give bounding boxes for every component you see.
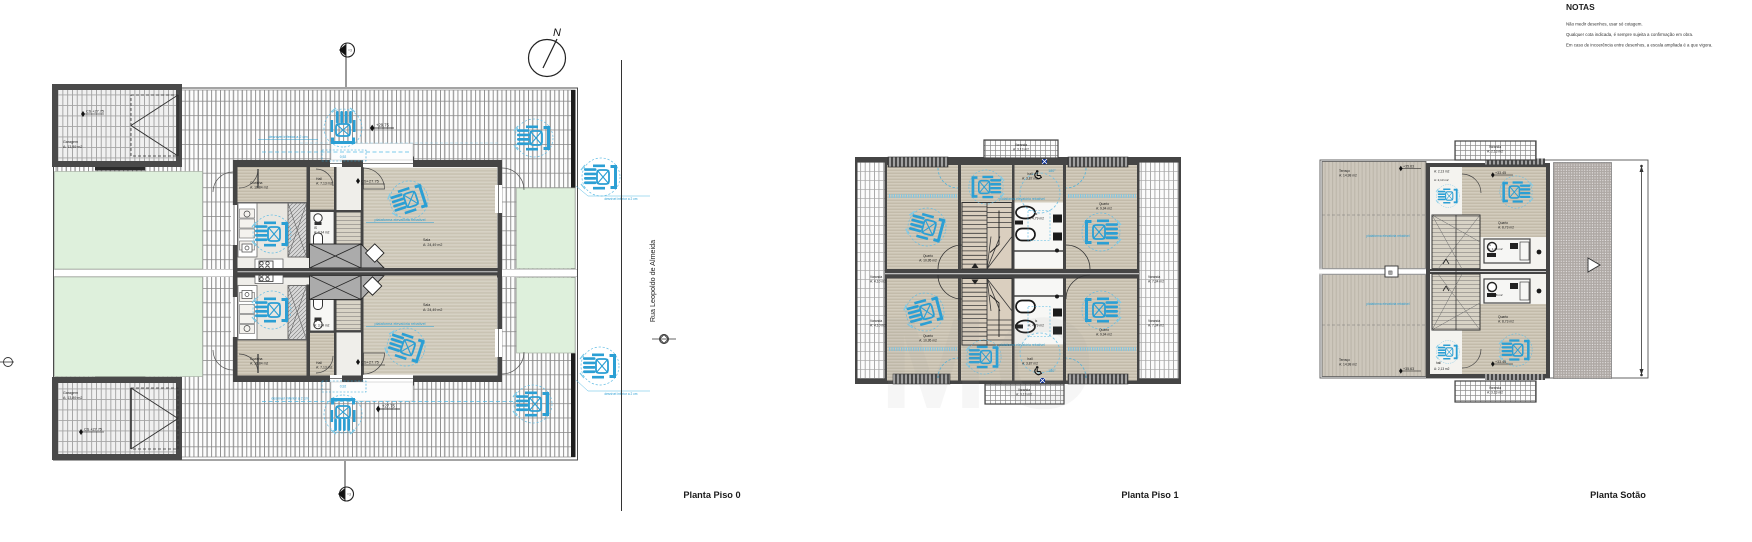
svg-text:plataforma elevatória rebatíve: plataforma elevatória rebatível (999, 197, 1045, 201)
svg-text:VarandaA: 3,13 m2: VarandaA: 3,13 m2 (1487, 386, 1503, 394)
svg-text:CS +27.75: CS +27.75 (86, 110, 104, 114)
svg-text:=3: =3 (347, 493, 351, 497)
svg-text:▧: ▧ (1388, 270, 1393, 276)
svg-text:VarandaA: 2,13 m2: VarandaA: 2,13 m2 (1487, 145, 1503, 153)
svg-text:plataforma elevatória rebatíve: plataforma elevatória rebatível (1367, 234, 1410, 238)
svg-text:A: 2,13 m2: A: 2,13 m2 (1434, 170, 1450, 174)
svg-text:CS +27.75: CS +27.75 (84, 428, 102, 432)
svg-text:Rua Leopoldo de Almeida: Rua Leopoldo de Almeida (648, 240, 657, 322)
svg-text:VarandaA: 3,13 m2: VarandaA: 3,13 m2 (1013, 143, 1029, 151)
svg-text:+27.75: +27.75 (382, 404, 396, 409)
svg-text:0,92: 0,92 (340, 385, 347, 389)
svg-text:0,92: 0,92 (340, 155, 347, 159)
svg-text:=3: =3 (348, 49, 352, 53)
svg-text:Planta Sotão: Planta Sotão (1590, 490, 1646, 500)
svg-text:NOTAS: NOTAS (1566, 2, 1595, 12)
svg-text:A: 2,13 m2: A: 2,13 m2 (1434, 178, 1449, 182)
svg-text:plataforma elevatória rebatíve: plataforma elevatória rebatível (1367, 302, 1410, 306)
svg-text:+33.45: +33.45 (1495, 360, 1506, 364)
svg-text:desnível inferior a 2 cm: desnível inferior a 2 cm (268, 135, 307, 139)
svg-text:hall: hall (1436, 361, 1441, 365)
svg-text:plataforma elevatória rebatíve: plataforma elevatória rebatível (374, 322, 425, 326)
svg-text:+35.63: +35.63 (1403, 164, 1414, 168)
svg-text:Em caso de incoerência entre d: Em caso de incoerência entre desenhos, a… (1566, 43, 1712, 48)
svg-text:Planta Piso 0: Planta Piso 0 (683, 490, 740, 500)
svg-text:Não medir desenhos, usar só co: Não medir desenhos, usar só cotagem. (1566, 22, 1643, 27)
svg-text:Planta Piso 1: Planta Piso 1 (1121, 490, 1178, 500)
svg-text:A: 2,13 m2: A: 2,13 m2 (1434, 367, 1450, 371)
svg-text:desnível inferior a 2 cm: desnível inferior a 2 cm (271, 397, 308, 401)
svg-text:N: N (553, 27, 561, 39)
svg-text:plataforma elevatória rebatíve: plataforma elevatória rebatível (374, 218, 425, 222)
svg-text:180°: 180° (1048, 169, 1056, 173)
svg-text:Qualquer cota indicada, é semp: Qualquer cota indicada, é sempre sujeita… (1566, 32, 1693, 37)
svg-text:MO: MO (879, 290, 1100, 436)
svg-text:+35.63: +35.63 (1403, 367, 1414, 371)
svg-text:+33.45: +33.45 (1495, 171, 1506, 175)
svg-text:+29.75: +29.75 (376, 123, 390, 128)
